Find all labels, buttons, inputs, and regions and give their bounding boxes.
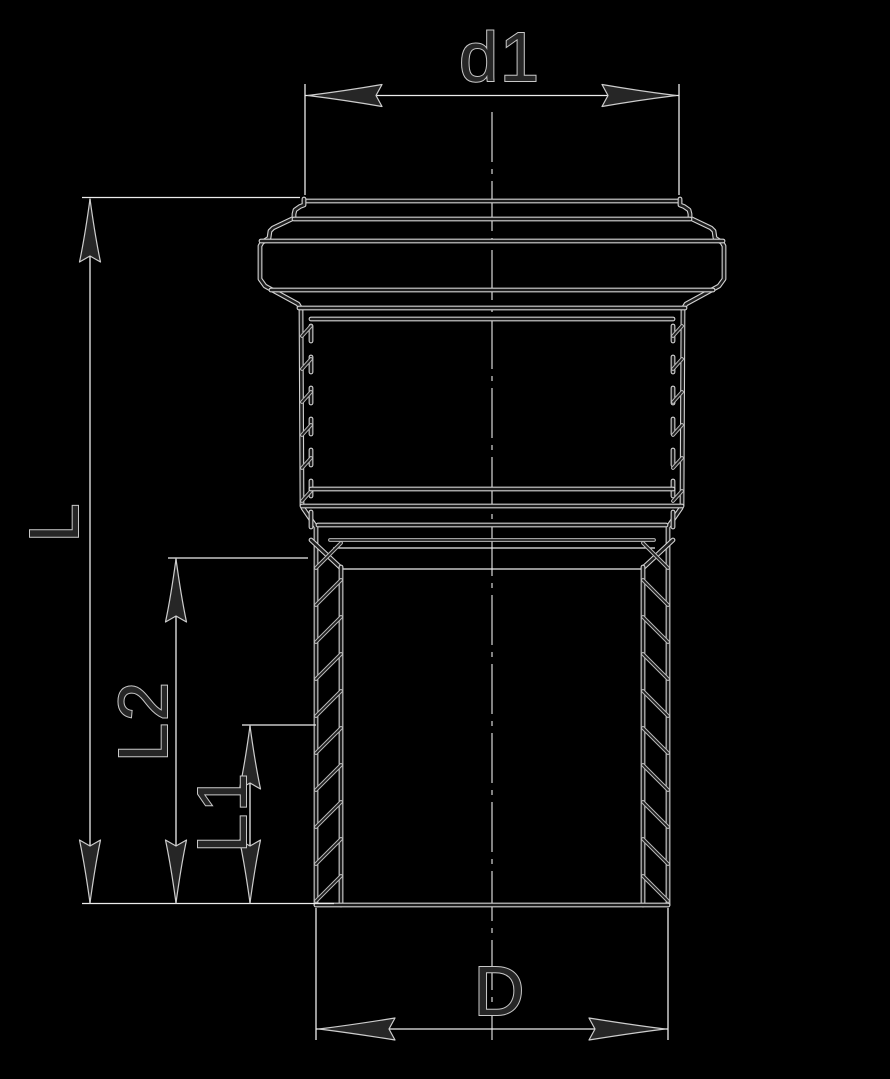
svg-text:d1: d1 [459,18,541,96]
svg-text:L2: L2 [104,680,182,762]
svg-text:L: L [15,502,93,543]
svg-text:D: D [474,952,527,1030]
svg-text:L1: L1 [183,771,261,853]
